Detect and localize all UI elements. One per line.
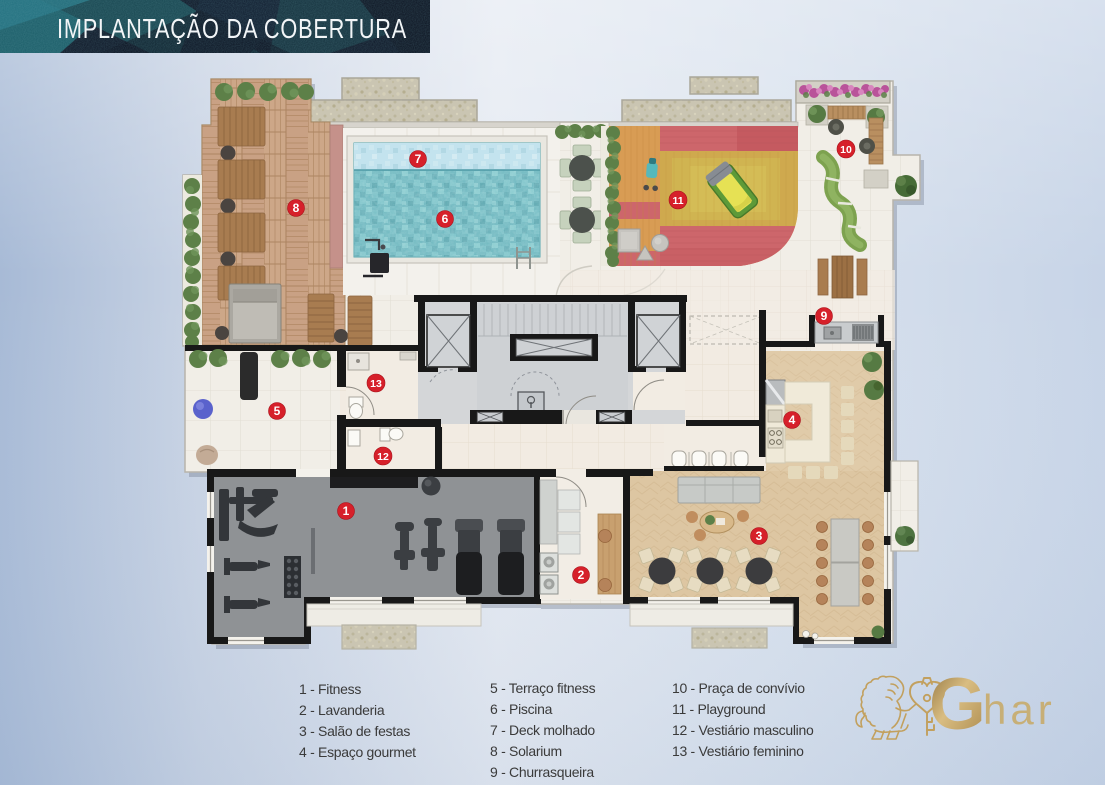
svg-text:11 - Playground: 11 - Playground: [672, 701, 765, 717]
svg-text:4 - Espaço gourmet: 4 - Espaço gourmet: [299, 744, 416, 760]
svg-text:13: 13: [370, 378, 382, 390]
svg-text:6 - Piscina: 6 - Piscina: [490, 701, 553, 717]
svg-text:2: 2: [578, 568, 585, 582]
svg-text:IMPLANTAÇÃO DA COBERTURA: IMPLANTAÇÃO DA COBERTURA: [57, 13, 407, 44]
svg-text:2 - Lavanderia: 2 - Lavanderia: [299, 702, 385, 718]
svg-text:4: 4: [789, 413, 796, 427]
svg-text:3 - Salão de festas: 3 - Salão de festas: [299, 723, 410, 739]
svg-text:G: G: [929, 664, 986, 745]
svg-text:1: 1: [343, 504, 350, 518]
svg-text:8 - Solarium: 8 - Solarium: [490, 743, 562, 759]
svg-text:9 - Churrasqueira: 9 - Churrasqueira: [490, 764, 594, 780]
svg-text:5: 5: [274, 404, 281, 418]
svg-text:13 - Vestiário feminino: 13 - Vestiário feminino: [672, 743, 804, 759]
svg-text:10 - Praça de convívio: 10 - Praça de convívio: [672, 680, 805, 696]
svg-text:3: 3: [756, 529, 763, 543]
svg-text:7: 7: [415, 152, 422, 166]
svg-text:har: har: [983, 686, 1056, 733]
svg-text:12 - Vestiário masculino: 12 - Vestiário masculino: [672, 722, 814, 738]
svg-text:7 - Deck molhado: 7 - Deck molhado: [490, 722, 595, 738]
svg-text:1 - Fitness: 1 - Fitness: [299, 681, 361, 697]
svg-text:6: 6: [442, 212, 449, 226]
svg-text:9: 9: [821, 309, 828, 323]
svg-text:10: 10: [840, 144, 852, 156]
svg-text:11: 11: [672, 195, 683, 207]
svg-text:8: 8: [293, 201, 300, 215]
svg-text:5 - Terraço fitness: 5 - Terraço fitness: [490, 680, 596, 696]
svg-text:12: 12: [377, 451, 389, 463]
